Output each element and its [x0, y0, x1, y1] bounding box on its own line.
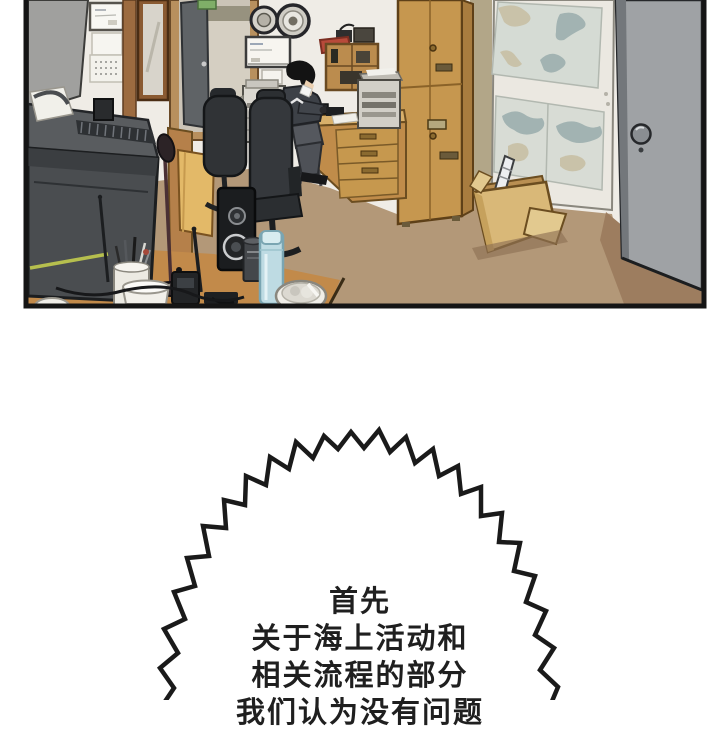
sea-chart-board	[492, 0, 614, 210]
storage-cabinet	[398, 0, 473, 227]
framed-mirror	[138, 0, 168, 100]
fax-machine	[358, 68, 402, 128]
wall-whiteboard	[90, 3, 123, 30]
comic-page: { "comic": { "panel": { "objects": [ "pa…	[0, 0, 720, 700]
speech-line: 我们认为没有问题	[176, 695, 544, 732]
speech-line: 首先	[176, 584, 544, 621]
entrance-door	[616, 0, 702, 290]
nautical-clocks	[251, 5, 309, 37]
small-monitor	[94, 99, 113, 120]
exit-sign	[198, 0, 216, 9]
mug	[123, 281, 169, 305]
comic-panel	[0, 0, 720, 312]
speech-line: 关于海上活动和	[176, 621, 544, 658]
walkie-talkie	[172, 267, 199, 304]
speech-line: 相关流程的部分	[176, 658, 544, 695]
wall-calendar	[90, 33, 123, 82]
speech-text: 首先 关于海上活动和 相关流程的部分 我们认为没有问题	[176, 584, 544, 732]
